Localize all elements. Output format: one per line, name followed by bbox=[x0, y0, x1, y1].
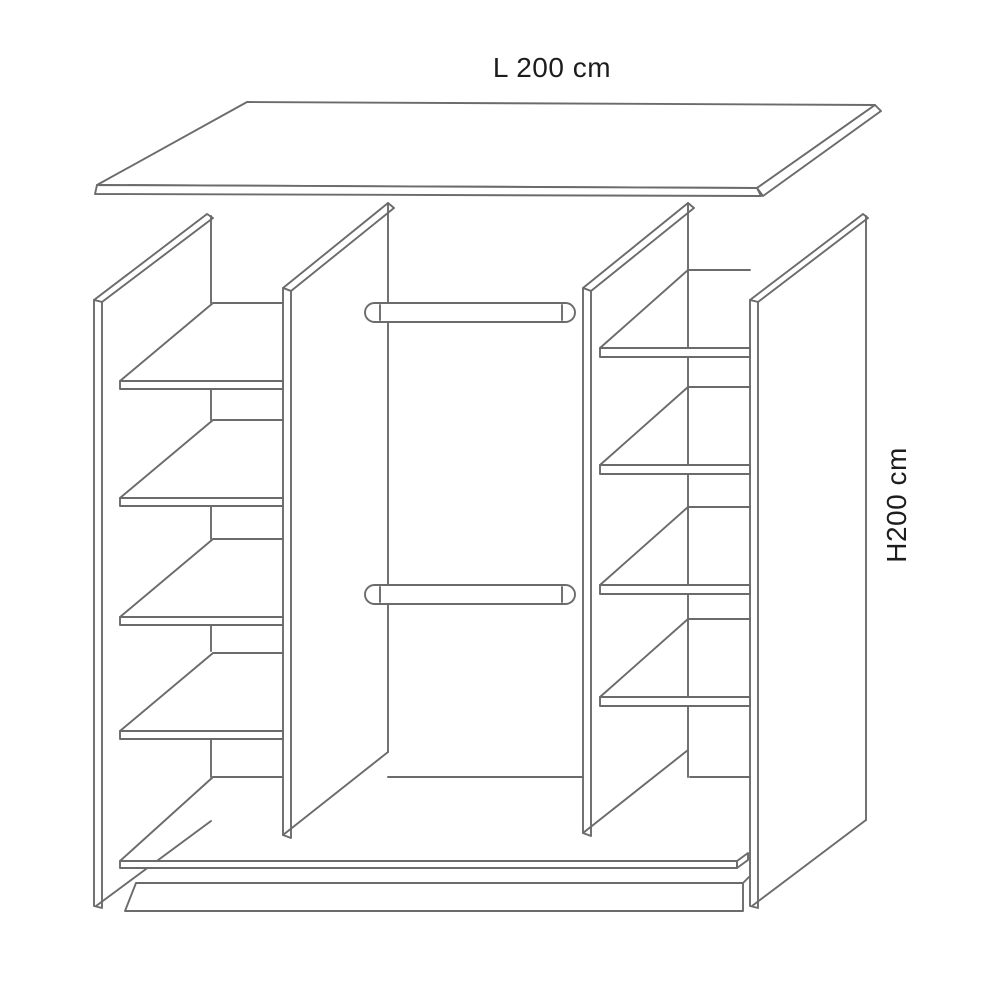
wardrobe-line-drawing: L 200 cm H200 cm bbox=[0, 0, 1000, 1000]
right-side-panel bbox=[750, 214, 868, 908]
shelf-right-1 bbox=[600, 270, 750, 357]
wardrobe-diagram: L 200 cm H200 cm bbox=[0, 0, 1000, 1000]
shelf-left-3 bbox=[120, 539, 283, 625]
plinth-base bbox=[125, 877, 749, 911]
shelf-right-3 bbox=[600, 507, 750, 594]
shelf-left-2 bbox=[120, 420, 283, 506]
shelf-right-2 bbox=[600, 387, 750, 474]
bottom-panel bbox=[120, 777, 750, 868]
top-panel bbox=[95, 102, 881, 196]
height-dimension-label: H200 cm bbox=[881, 447, 912, 563]
shelf-left-1 bbox=[120, 303, 283, 389]
width-dimension-label: L 200 cm bbox=[493, 52, 611, 83]
hanging-rail-middle bbox=[365, 585, 575, 604]
right-partition-panel bbox=[583, 203, 694, 836]
shelf-left-4 bbox=[120, 653, 283, 739]
hanging-rail-top bbox=[365, 303, 575, 322]
shelf-right-4 bbox=[600, 619, 750, 706]
left-partition-panel bbox=[283, 203, 394, 838]
